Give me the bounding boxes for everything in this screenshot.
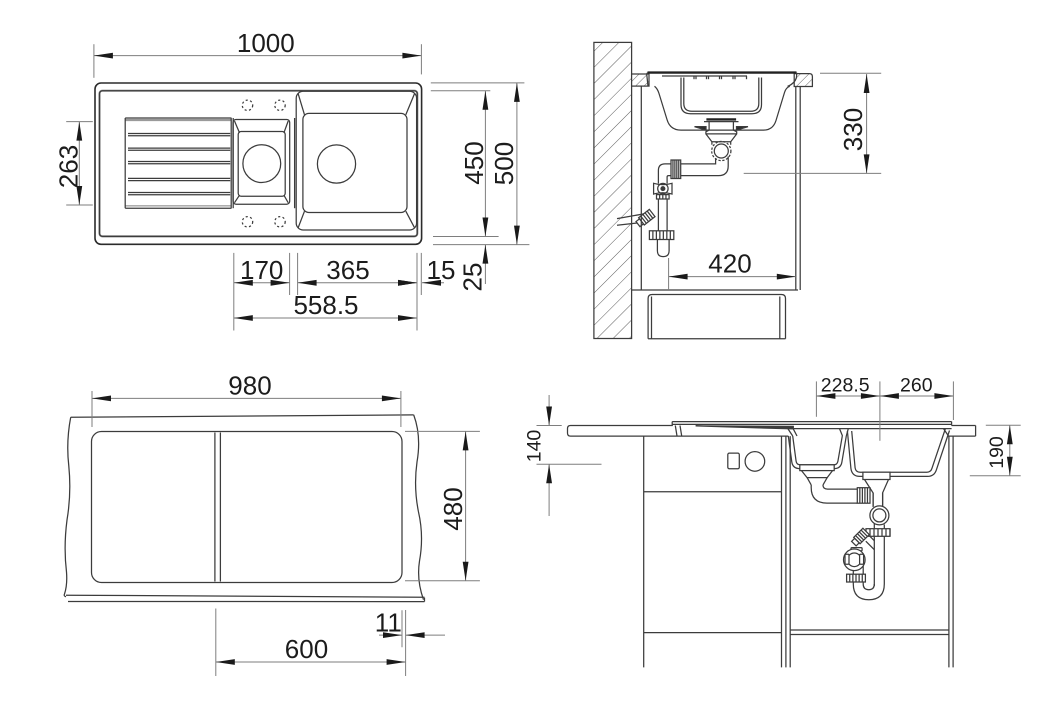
svg-text:263: 263 [53,145,83,188]
svg-text:1000: 1000 [237,28,295,58]
svg-text:140: 140 [524,430,546,463]
svg-text:365: 365 [326,255,369,285]
svg-text:600: 600 [285,634,328,664]
svg-text:558.5: 558.5 [293,290,358,320]
svg-text:228.5: 228.5 [821,374,870,396]
svg-text:170: 170 [240,255,283,285]
svg-text:330: 330 [838,108,868,151]
svg-text:450: 450 [459,141,489,184]
svg-text:15: 15 [427,255,456,285]
svg-text:25: 25 [457,263,487,292]
svg-text:500: 500 [489,142,519,185]
svg-text:980: 980 [228,371,271,401]
svg-text:260: 260 [900,374,933,396]
svg-text:420: 420 [708,249,751,279]
svg-text:190: 190 [986,436,1008,469]
svg-text:480: 480 [438,487,468,530]
svg-text:11: 11 [375,608,402,638]
